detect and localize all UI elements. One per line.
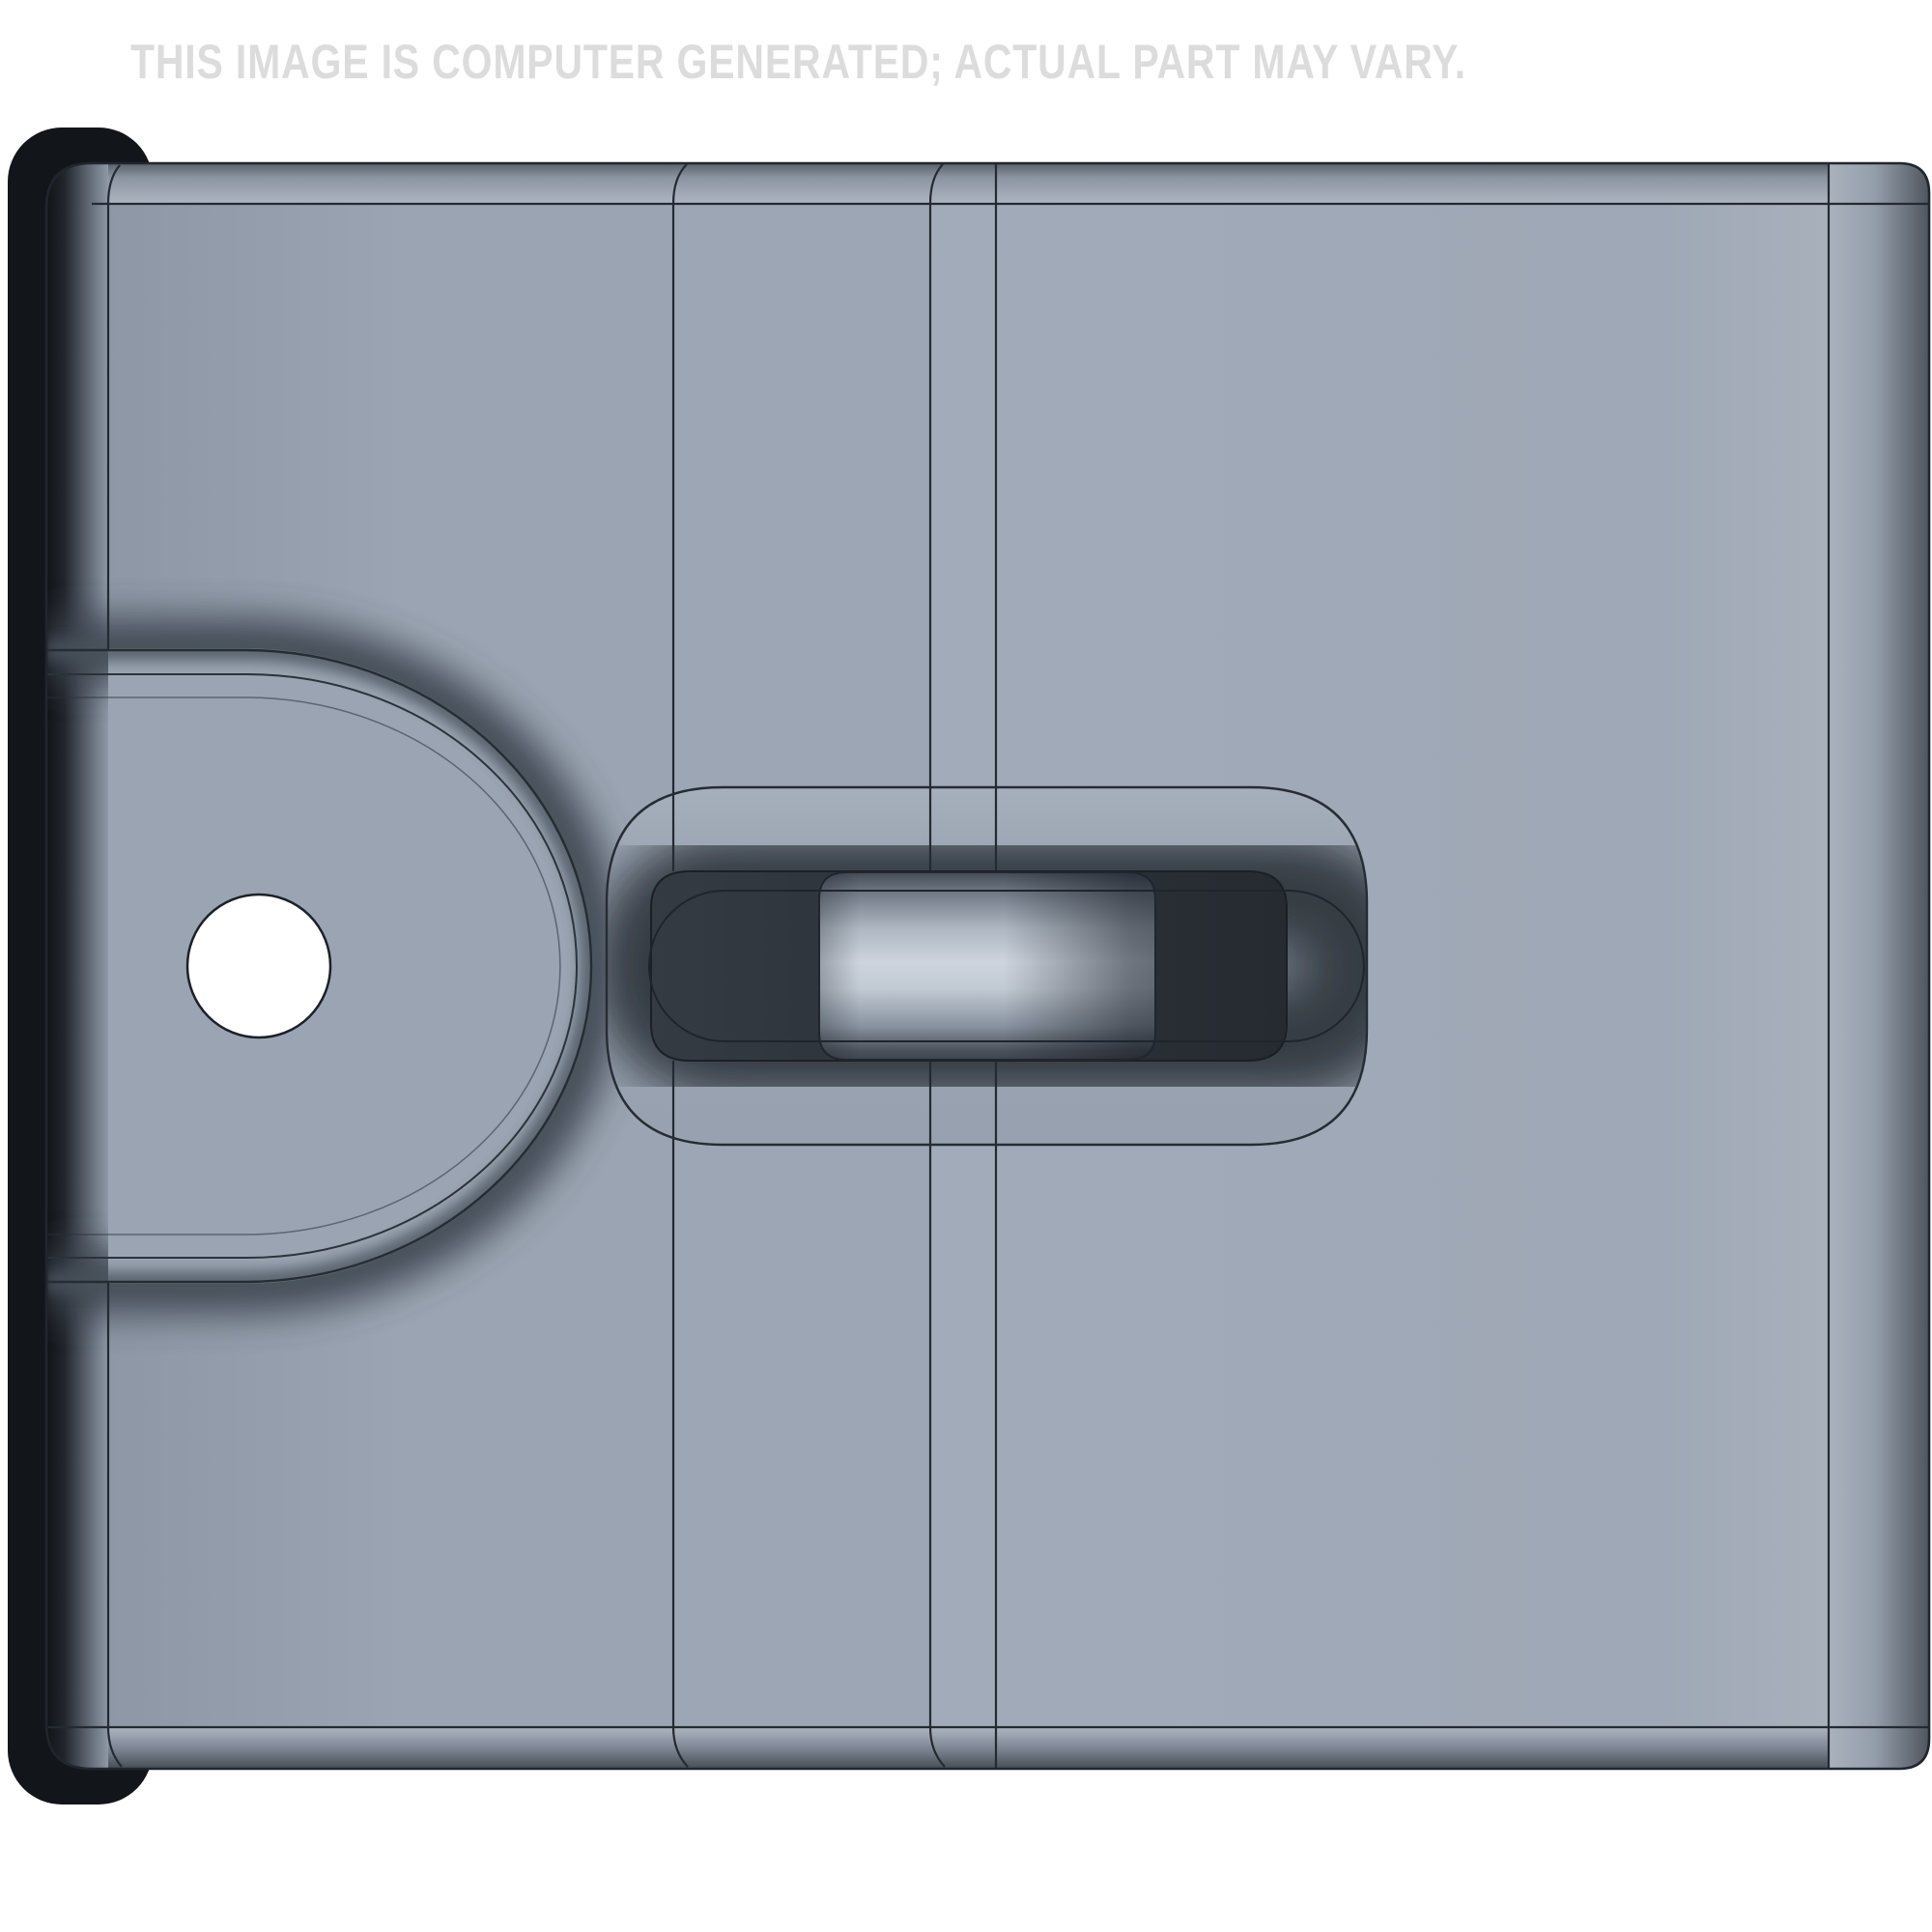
left-edge-shadow-band xyxy=(46,163,108,1769)
cad-product-render: THIS IMAGE IS COMPUTER GENERATED; ACTUAL… xyxy=(0,0,1932,1932)
tab-mounting-hole xyxy=(187,895,330,1037)
part-illustration xyxy=(0,0,1932,1932)
mounting-tab xyxy=(46,648,591,1284)
plate-body xyxy=(46,163,1929,1769)
right-edge-band xyxy=(1829,163,1929,1769)
top-edge-band xyxy=(46,163,1929,204)
roller-pin-shading xyxy=(819,872,1155,1060)
bottom-edge-band xyxy=(46,1727,1929,1769)
